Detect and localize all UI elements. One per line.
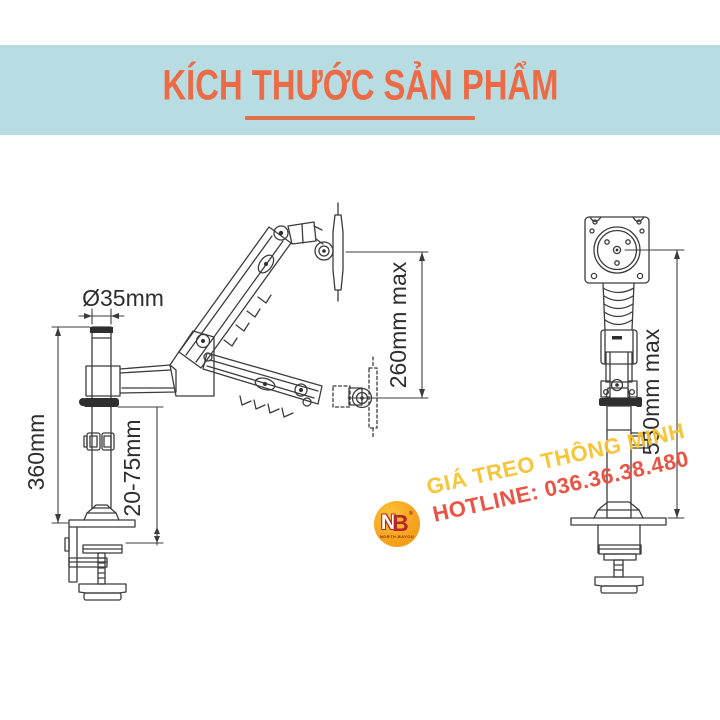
label-pole-diameter: Ø35mm (82, 285, 164, 311)
side-lowered-arm (203, 353, 377, 438)
brand-logo: NB® NORTH-BAYOU (374, 501, 420, 547)
label-vertical-travel: 260mm max (385, 261, 411, 388)
side-upper-arm (179, 203, 343, 368)
front-arm (599, 283, 642, 407)
registered-mark: ® (409, 511, 413, 517)
side-clamp (65, 505, 135, 600)
side-pole (79, 327, 120, 508)
label-clamp-range: 20-75mm (119, 419, 145, 516)
label-pole-height: 360mm (23, 414, 49, 491)
brand-logo-subtext: NORTH-BAYOU (380, 534, 414, 539)
side-view-drawing (65, 203, 377, 600)
brand-logo-letters: NB® (381, 512, 413, 535)
dimension-diagram: Ø35mm 360mm 20-75mm 260mm max 550mm max (0, 0, 720, 720)
brand-letter-b: B (392, 512, 409, 535)
side-lower-link (120, 331, 214, 396)
